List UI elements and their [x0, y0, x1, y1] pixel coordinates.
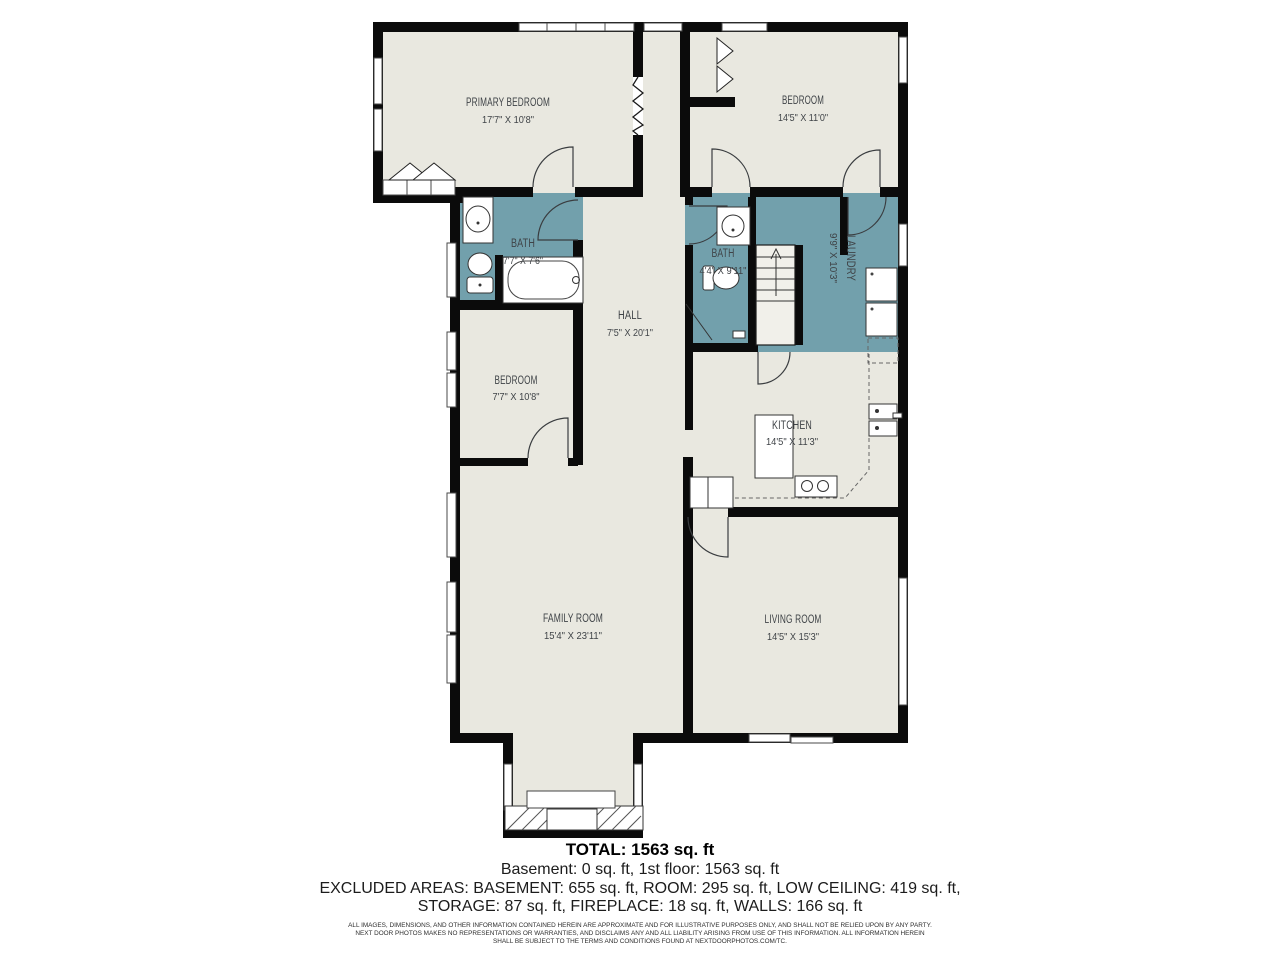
- room-dims: 4'4" X 9'11": [700, 265, 747, 277]
- entry-landing: [527, 791, 615, 808]
- wall-segment: [728, 507, 908, 517]
- wall-segment: [495, 255, 503, 305]
- wall-segment: [453, 187, 533, 197]
- toilet-bowl: [468, 253, 492, 275]
- wall-segment: [575, 187, 643, 197]
- wall-segment: [568, 458, 578, 466]
- room-label: LIVING ROOM: [765, 614, 822, 626]
- wall-break-icon: [633, 77, 643, 135]
- wall-segment: [453, 458, 528, 466]
- window: [899, 37, 907, 83]
- window: [749, 734, 790, 742]
- floor-plan-svg: PRIMARY BEDROOM 17'7" X 10'8" BEDROOM 14…: [0, 0, 1280, 960]
- wall-segment: [685, 245, 693, 430]
- wall-segment: [880, 187, 898, 197]
- entry-stoop: [547, 809, 597, 830]
- excluded-areas-text: EXCLUDED AREAS: BASEMENT: 655 sq. ft, RO…: [319, 880, 960, 897]
- room-label: BATH: [511, 238, 535, 250]
- window: [722, 23, 767, 31]
- room-label: FAMILY ROOM: [543, 613, 603, 625]
- window: [447, 373, 456, 407]
- room-dims: 7'5" X 20'1": [607, 327, 653, 339]
- wall-segment: [683, 507, 688, 517]
- window: [447, 582, 456, 632]
- room-label: HALL: [618, 310, 642, 322]
- shower-fixture: [733, 331, 745, 338]
- window: [504, 764, 512, 810]
- window: [634, 764, 642, 810]
- disclaimer-line: SHALL BE SUBJECT TO THE TERMS AND CONDIT…: [493, 938, 787, 945]
- window: [644, 23, 682, 31]
- window: [447, 243, 456, 297]
- room-dims: 17'7" X 10'8": [482, 114, 534, 126]
- wall-segment: [683, 517, 693, 743]
- room-label: BEDROOM: [782, 95, 824, 107]
- room-dims: 14'5" X 11'3": [766, 436, 818, 448]
- wall-segment: [690, 187, 712, 197]
- window: [447, 635, 456, 683]
- room-label: KITCHEN: [772, 420, 812, 432]
- room-dims: 7'7" X 10'8": [493, 391, 540, 403]
- wall-segment: [680, 22, 690, 197]
- room-dims: 9'9" X 10'3": [827, 233, 839, 283]
- washer: [866, 268, 897, 301]
- sink-drain: [875, 426, 879, 430]
- window: [447, 332, 456, 370]
- wall-segment: [685, 197, 693, 205]
- window: [899, 224, 907, 266]
- room-label: BATH: [712, 248, 735, 260]
- washer-knob: [871, 273, 874, 276]
- window: [374, 58, 382, 104]
- sink-drain: [875, 409, 879, 413]
- wall-segment: [795, 245, 803, 345]
- room-dims: 14'5" X 11'0": [778, 112, 828, 124]
- bay-window-band: [383, 180, 455, 195]
- wall-segment: [690, 97, 735, 107]
- wall-segment: [450, 733, 513, 743]
- room-label: LAUNDRY: [844, 235, 856, 281]
- excluded-areas-text: STORAGE: 87 sq. ft, FIREPLACE: 18 sq. ft…: [418, 898, 863, 915]
- sink-basin: [722, 215, 744, 237]
- floor-areas-text: Basement: 0 sq. ft, 1st floor: 1563 sq. …: [501, 861, 780, 878]
- window: [447, 493, 456, 557]
- sink-drain: [477, 222, 480, 225]
- window: [899, 578, 907, 705]
- total-area-text: TOTAL: 1563 sq. ft: [566, 840, 715, 859]
- kitchen-sink: [869, 421, 897, 436]
- refrigerator: [690, 477, 733, 508]
- toilet-button: [479, 284, 482, 287]
- dryer: [866, 303, 897, 336]
- room-dims: 14'5" X 15'3": [767, 631, 819, 643]
- room-label: PRIMARY BEDROOM: [466, 97, 550, 109]
- room-dims: 15'4" X 23'11": [544, 630, 602, 642]
- room-label: BEDROOM: [495, 375, 538, 387]
- sink-basin: [466, 206, 490, 232]
- disclaimer-line: NEXT DOOR PHOTOS MAKES NO REPRESENTATION…: [355, 930, 925, 937]
- disclaimer-line: ALL IMAGES, DIMENSIONS, AND OTHER INFORM…: [348, 922, 932, 929]
- room-dims: 7'7" X 7'6": [503, 255, 543, 267]
- dryer-knob: [871, 308, 874, 311]
- sink-faucet-icon: [893, 413, 902, 418]
- wall-segment: [685, 343, 758, 352]
- window: [374, 109, 382, 151]
- window: [791, 737, 833, 743]
- wall-segment: [750, 187, 843, 197]
- sink-drain: [732, 229, 735, 232]
- stairs: [756, 245, 795, 345]
